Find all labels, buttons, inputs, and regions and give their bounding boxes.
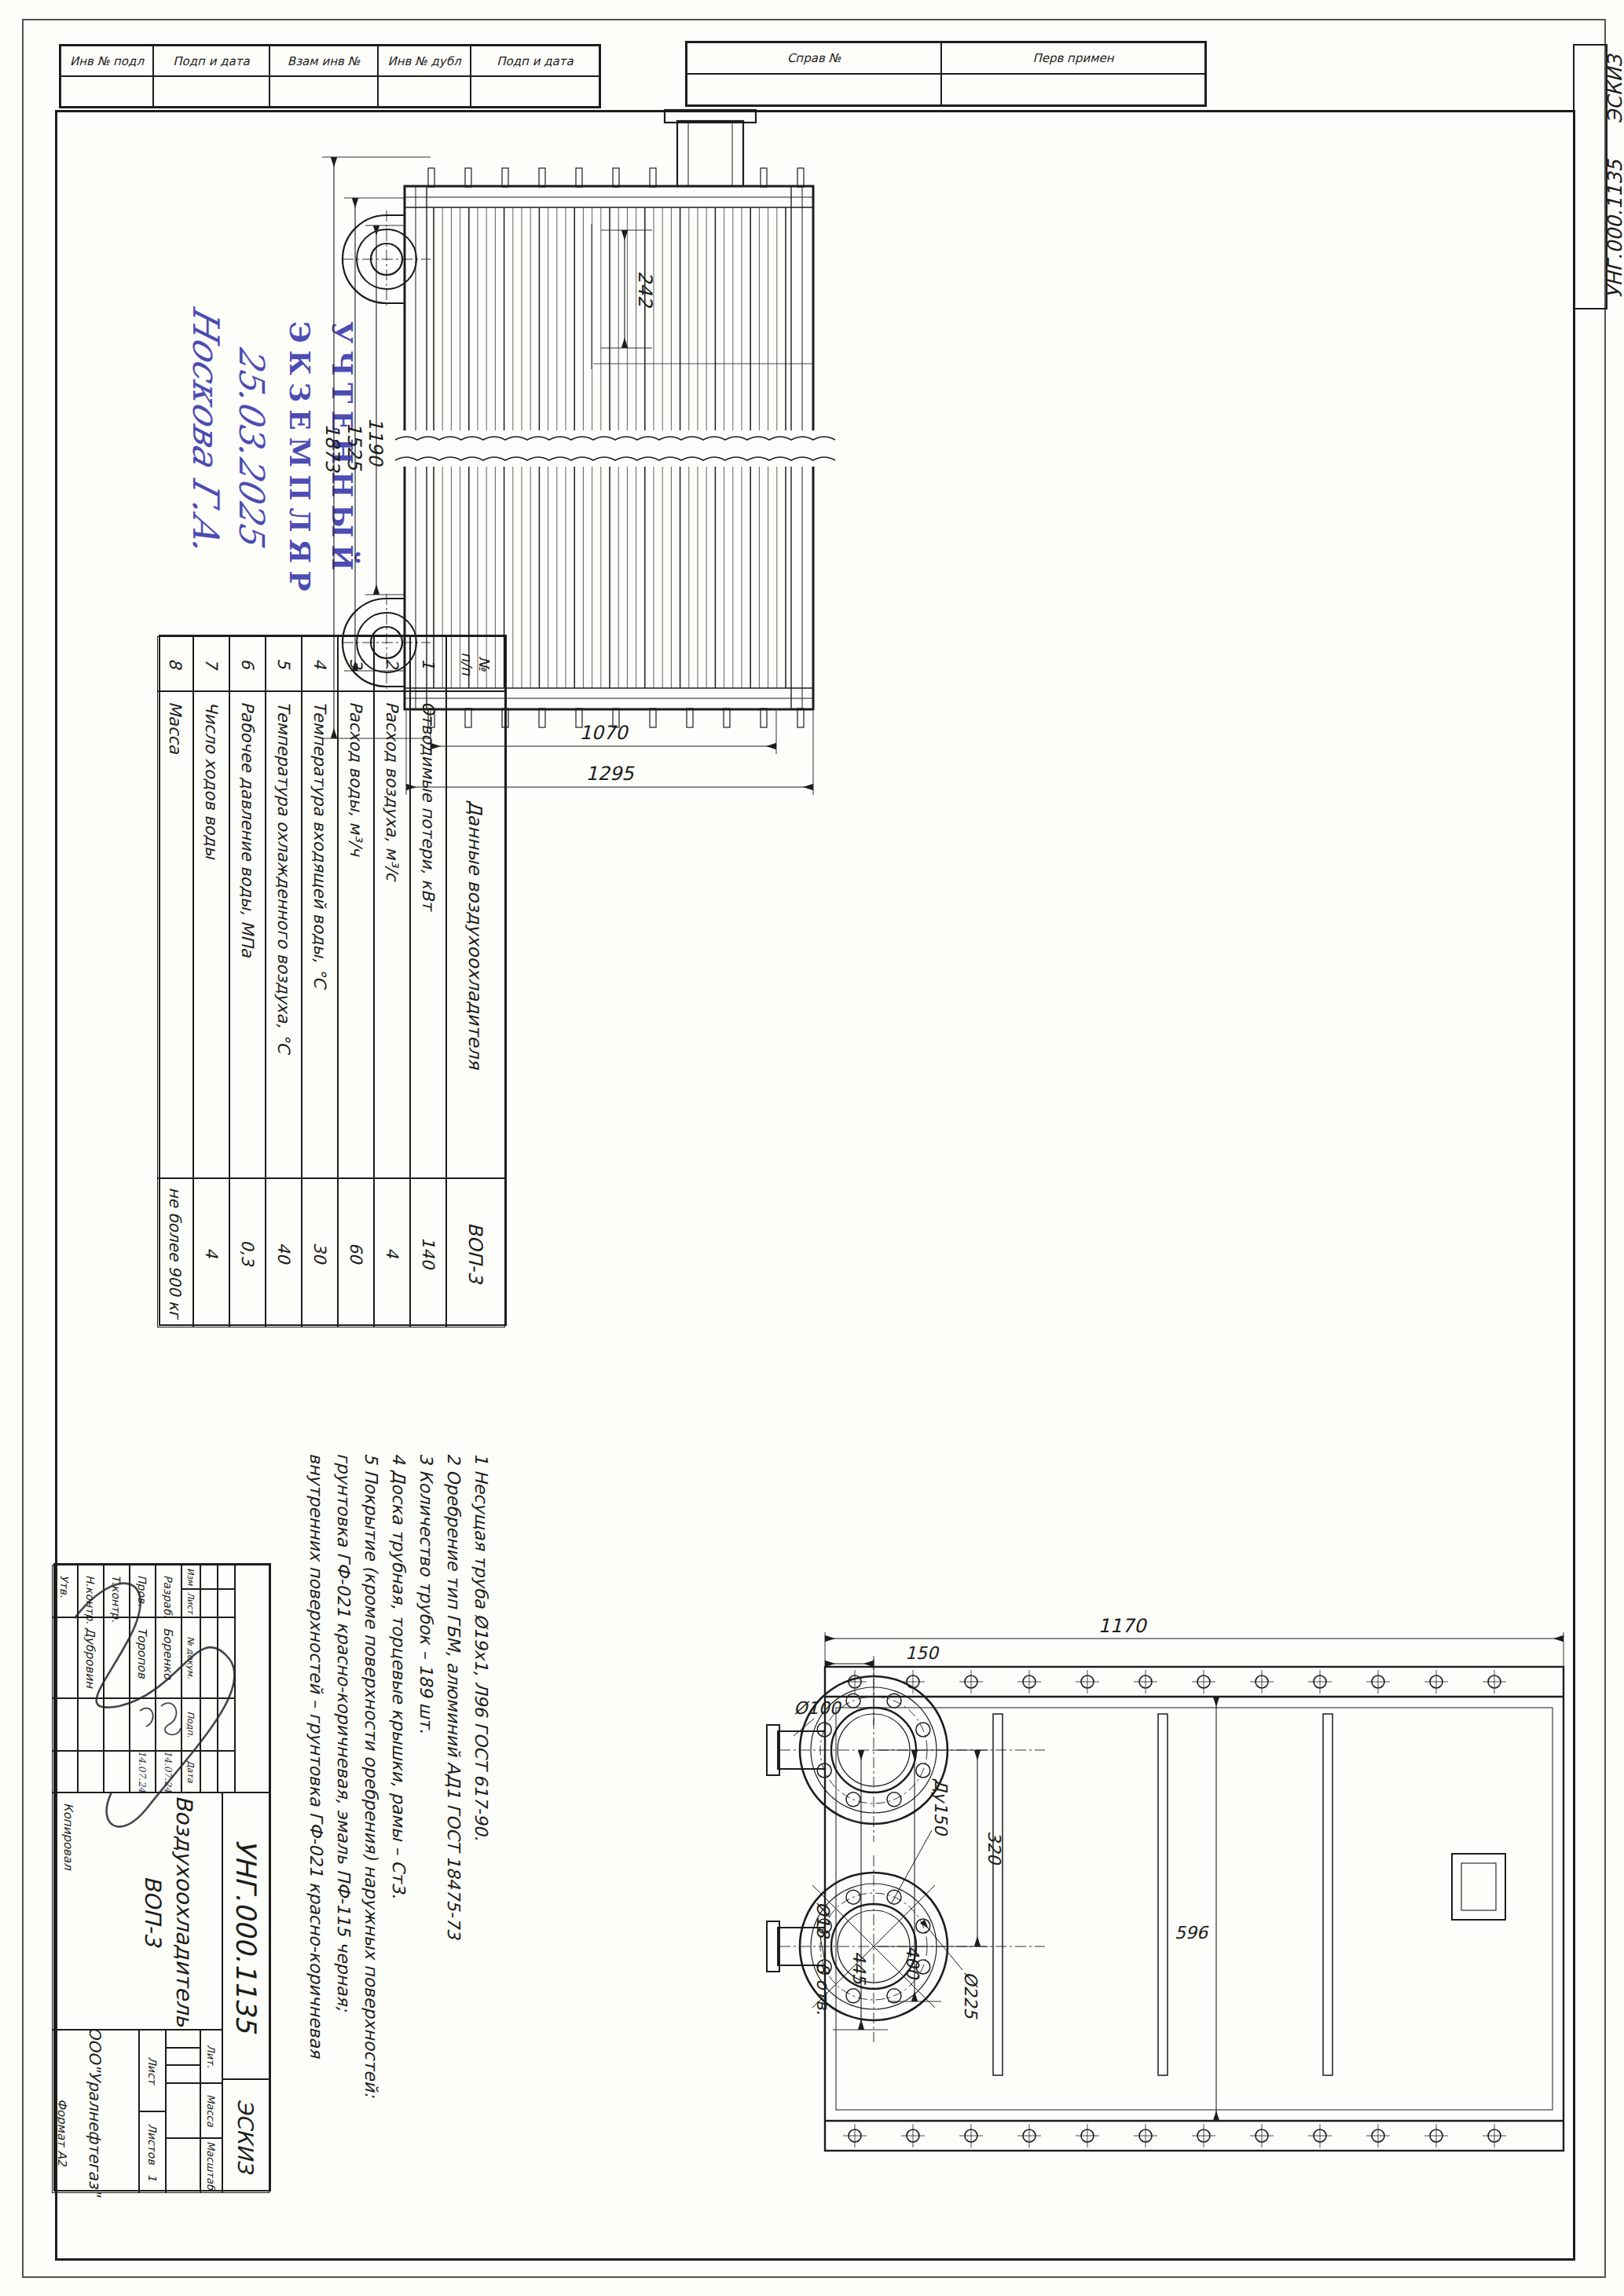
dim-label-320: 320 [984,1831,1004,1866]
access-plate [1452,1854,1505,1920]
scanned-drawing-sheet: Инв № подл Подп и дата Взам инв № Инв № … [0,0,1624,2296]
dim-label-d225: Ø225 [961,1972,981,2019]
dim-label-1190: 1190 [365,417,387,467]
dim-label-596: 596 [1175,1923,1209,1943]
dim-label-1873: 1873 [321,423,343,473]
pipe-stub [677,121,743,186]
dim-label-8otv: 8 отв. [813,1962,833,2015]
casing-bolts [843,1670,1506,2148]
dim-label-du150: Ду150 [931,1778,951,1836]
lug-lower [343,594,431,691]
stiffener [1158,1714,1168,2075]
dim-label-1525: 1525 [343,422,365,471]
stiffener [993,1714,1003,2075]
dim-label-d100: Ø100 [794,1698,841,1718]
dim-label-445: 445 [849,1951,869,1985]
dim-label-1170: 1170 [1098,1615,1147,1637]
signature-scrawl [75,1584,235,1827]
dim-label-400: 400 [903,1946,922,1980]
stiffener [1323,1714,1333,2075]
dim-label-242: 242 [634,271,656,309]
dim-label-1295: 1295 [585,763,635,785]
dim-label-1070: 1070 [579,722,629,744]
drawing-views: 1873 1525 1190 242 1070 1295 [0,0,1624,2296]
flange-upper [779,1659,1045,1842]
dim-label-150: 150 [905,1643,940,1663]
dim-label-d18: Ø18 [813,1902,833,1939]
bottom-view [767,1632,1564,2151]
